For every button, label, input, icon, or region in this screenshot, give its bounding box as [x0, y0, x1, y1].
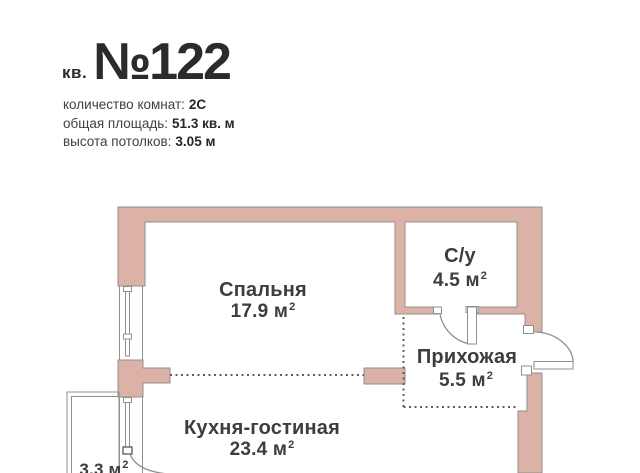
window-kitchen-glazing: [126, 399, 130, 448]
room-area-bathroom-sup: 2: [481, 270, 487, 282]
room-label-bathroom: С/у: [444, 246, 476, 267]
room-label-hallway: Прихожая: [417, 347, 517, 368]
entrance-door: [522, 326, 574, 376]
room-area-balcony: 3.3 м2: [79, 461, 128, 473]
bathroom-door-jamb: [434, 307, 442, 314]
window-bedroom-cap-top: [124, 287, 132, 292]
window-kitchen-cap-top: [124, 398, 132, 403]
entrance-door-hinge-bottom: [522, 366, 532, 375]
entrance-door-leaf: [534, 362, 573, 370]
balcony-door-hinge: [123, 447, 132, 454]
room-area-balcony-sup: 2: [122, 459, 128, 471]
room-area-bedroom-sup: 2: [289, 301, 295, 313]
room-area-hallway: 5.5 м2: [439, 371, 493, 391]
room-area-kitchen-sup: 2: [288, 439, 294, 451]
room-label-bedroom: Спальня: [219, 280, 307, 301]
wall-middle-stub: [364, 368, 405, 384]
wall-right-lower: [518, 373, 542, 473]
room-area-balcony-value: 3.3 м: [79, 460, 121, 473]
room-area-bathroom: 4.5 м2: [433, 271, 487, 291]
room-area-hallway-value: 5.5 м: [439, 370, 486, 391]
entrance-door-swing-arc: [536, 332, 573, 361]
room-label-kitchen: Кухня-гостиная: [184, 418, 340, 439]
wall-left-pier: [118, 360, 170, 397]
balcony-door-swing-arc: [130, 454, 168, 473]
room-area-kitchen: 23.4 м2: [230, 440, 295, 460]
room-area-bedroom: 17.9 м2: [231, 302, 296, 322]
room-area-hallway-sup: 2: [487, 370, 493, 382]
entrance-door-hinge-top: [524, 326, 534, 334]
window-bedroom-mullion: [124, 334, 132, 339]
bathroom-door-leaf: [468, 307, 477, 344]
room-area-bedroom-value: 17.9 м: [231, 301, 289, 322]
floor-plan-page: кв. №122 количество комнат:2С общая площ…: [0, 0, 640, 473]
room-area-bathroom-value: 4.5 м: [433, 270, 480, 291]
window-bedroom: [120, 286, 143, 360]
bathroom-door-swing-arc: [440, 314, 471, 344]
room-area-kitchen-value: 23.4 м: [230, 439, 288, 460]
bathroom-door: [434, 307, 479, 345]
window-bedroom-glazing: [126, 290, 130, 356]
floor-plan-drawing: [0, 0, 640, 473]
